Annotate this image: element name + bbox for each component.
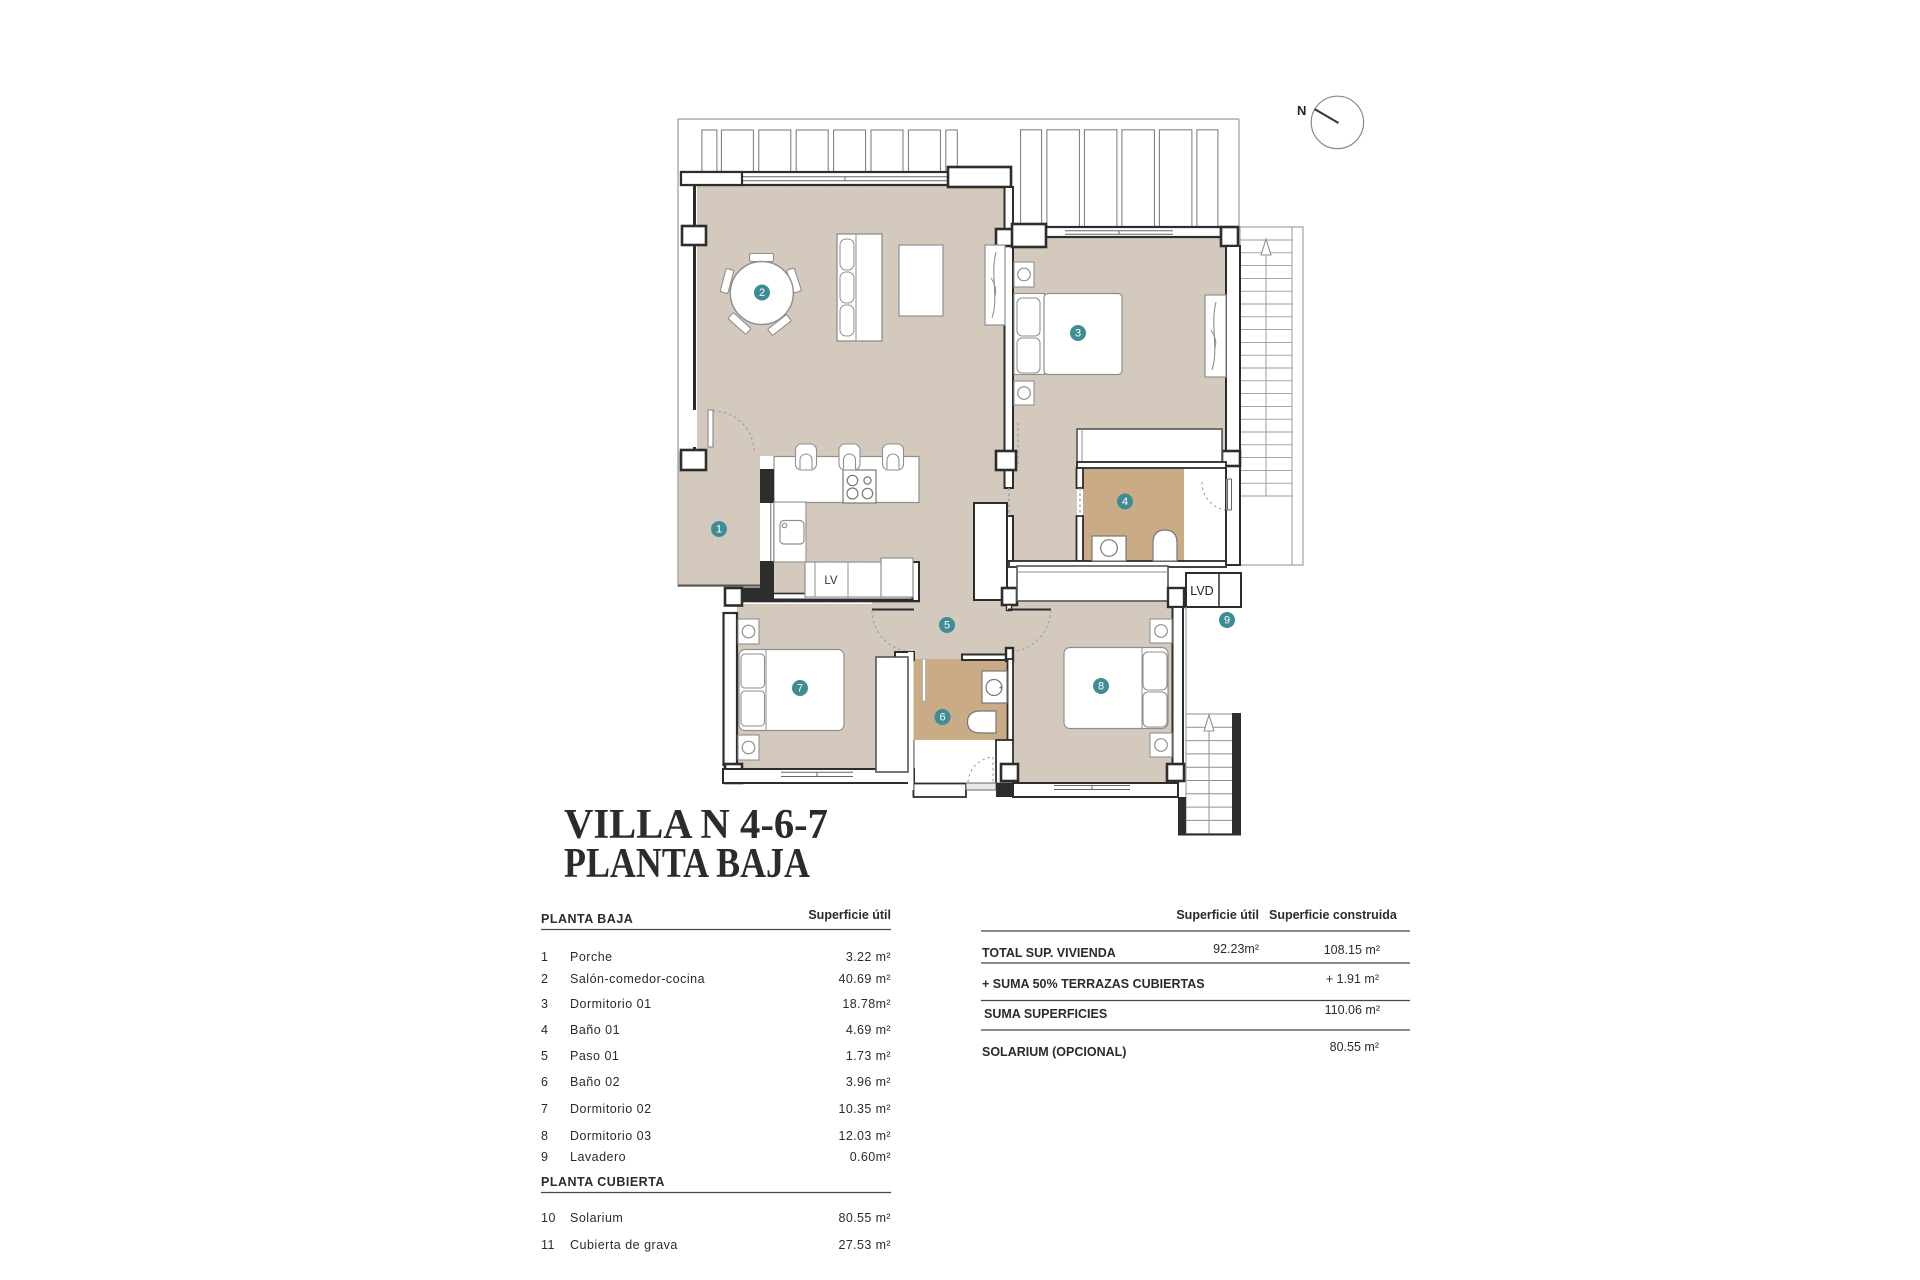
svg-text:110.06 m²: 110.06 m² <box>1325 1003 1380 1017</box>
svg-text:92.23m²: 92.23m² <box>1213 942 1259 956</box>
svg-text:4.69 m²: 4.69 m² <box>846 1023 891 1037</box>
svg-text:Salón-comedor-cocina: Salón-comedor-cocina <box>570 972 705 986</box>
svg-text:1.73 m²: 1.73 m² <box>846 1049 891 1063</box>
svg-text:40.69 m²: 40.69 m² <box>838 972 891 986</box>
svg-text:SOLARIUM (OPCIONAL): SOLARIUM (OPCIONAL) <box>982 1045 1126 1059</box>
svg-text:12.03 m²: 12.03 m² <box>838 1129 891 1143</box>
svg-text:4: 4 <box>541 1023 548 1037</box>
svg-text:LVD: LVD <box>1190 584 1213 598</box>
svg-text:Dormitorio 01: Dormitorio 01 <box>570 997 652 1011</box>
svg-text:Cubierta de grava: Cubierta de grava <box>570 1238 678 1252</box>
svg-text:3: 3 <box>541 997 548 1011</box>
svg-text:PLANTA CUBIERTA: PLANTA CUBIERTA <box>541 1175 665 1189</box>
svg-text:6: 6 <box>541 1075 548 1089</box>
svg-text:8: 8 <box>541 1129 548 1143</box>
svg-text:10: 10 <box>541 1211 556 1225</box>
svg-text:PLANTA BAJA: PLANTA BAJA <box>541 912 633 926</box>
svg-text:+ 1.91 m²: + 1.91 m² <box>1326 972 1379 986</box>
svg-text:7: 7 <box>797 683 803 695</box>
svg-text:9: 9 <box>1224 615 1230 627</box>
svg-text:80.55 m²: 80.55 m² <box>838 1211 891 1225</box>
svg-text:Porche: Porche <box>570 950 613 964</box>
svg-text:1: 1 <box>541 950 548 964</box>
svg-text:Dormitorio 02: Dormitorio 02 <box>570 1102 652 1116</box>
svg-text:7: 7 <box>541 1102 548 1116</box>
svg-text:PLANTA BAJA: PLANTA BAJA <box>564 841 811 887</box>
svg-text:Paso 01: Paso 01 <box>570 1049 619 1063</box>
svg-text:11: 11 <box>541 1238 555 1252</box>
svg-text:TOTAL SUP. VIVIENDA: TOTAL SUP. VIVIENDA <box>982 946 1116 960</box>
svg-text:Solarium: Solarium <box>570 1211 623 1225</box>
svg-text:0.60m²: 0.60m² <box>850 1150 891 1164</box>
svg-text:2: 2 <box>541 972 548 986</box>
svg-text:Superficie construida: Superficie construida <box>1269 908 1398 922</box>
svg-text:8: 8 <box>1098 681 1104 693</box>
svg-text:5: 5 <box>541 1049 548 1063</box>
svg-text:3: 3 <box>1075 328 1081 340</box>
svg-text:Dormitorio 03: Dormitorio 03 <box>570 1129 652 1143</box>
svg-text:3.96 m²: 3.96 m² <box>846 1075 891 1089</box>
svg-text:9: 9 <box>541 1150 548 1164</box>
svg-text:18.78m²: 18.78m² <box>842 997 891 1011</box>
svg-text:+ SUMA 50% TERRAZAS CUBIERTAS: + SUMA 50% TERRAZAS CUBIERTAS <box>982 977 1205 991</box>
svg-text:Superficie útil: Superficie útil <box>808 908 891 922</box>
svg-text:LV: LV <box>824 575 838 587</box>
svg-text:Superficie útil: Superficie útil <box>1176 908 1259 922</box>
svg-text:N: N <box>1297 103 1306 118</box>
svg-text:SUMA SUPERFICIES: SUMA SUPERFICIES <box>984 1007 1107 1021</box>
svg-text:3.22 m²: 3.22 m² <box>846 950 891 964</box>
svg-text:Lavadero: Lavadero <box>570 1150 626 1164</box>
svg-text:Baño 02: Baño 02 <box>570 1075 620 1089</box>
svg-text:1: 1 <box>716 524 722 536</box>
svg-text:80.55 m²: 80.55 m² <box>1330 1040 1379 1054</box>
svg-text:10.35 m²: 10.35 m² <box>838 1102 891 1116</box>
svg-text:5: 5 <box>944 620 950 632</box>
svg-text:6: 6 <box>939 712 945 724</box>
svg-text:2: 2 <box>759 287 765 299</box>
svg-text:4: 4 <box>1122 496 1128 508</box>
svg-text:108.15 m²: 108.15 m² <box>1324 943 1380 957</box>
svg-text:Baño 01: Baño 01 <box>570 1023 620 1037</box>
svg-text:27.53 m²: 27.53 m² <box>838 1238 891 1252</box>
